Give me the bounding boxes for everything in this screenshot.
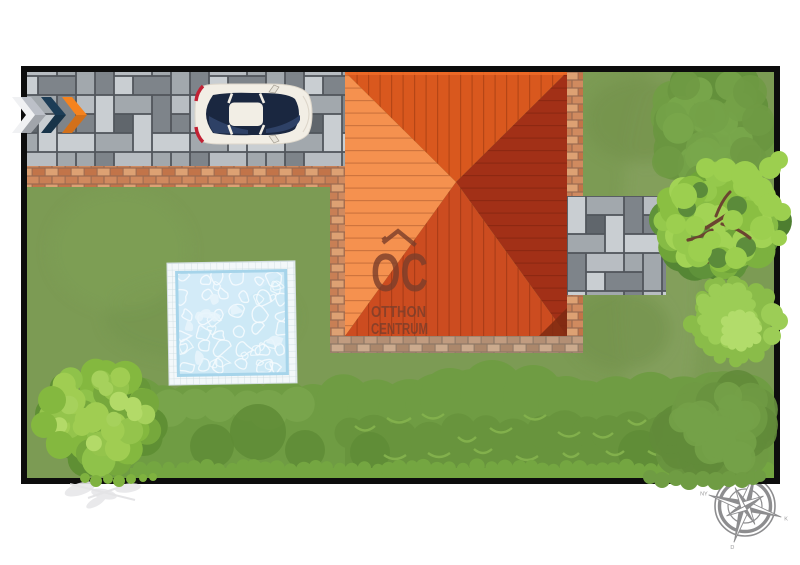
svg-text:K: K [784,517,788,523]
svg-text:CENTRUM: CENTRUM [371,321,428,338]
svg-text:OTTHON: OTTHON [371,304,426,321]
svg-text:OC: OC [371,243,428,303]
svg-text:NY: NY [700,491,708,497]
svg-text:D: D [730,545,734,551]
